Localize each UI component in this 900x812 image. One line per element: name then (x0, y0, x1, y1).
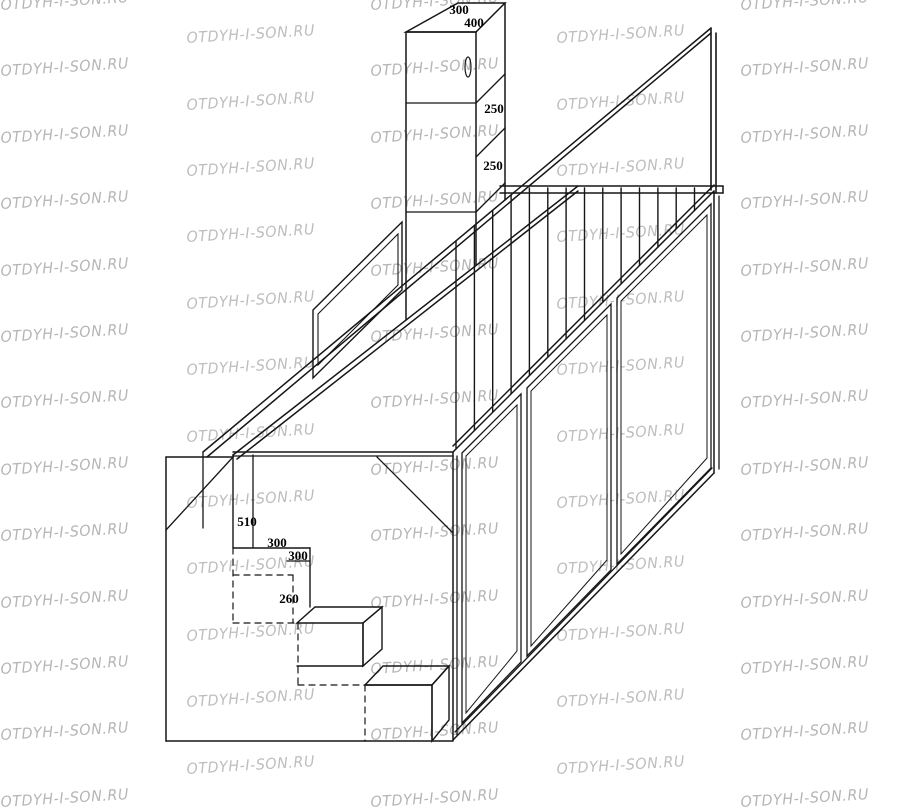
hidden-edges (233, 548, 365, 741)
dimension-label: 250 (483, 158, 503, 173)
step-1-top (297, 607, 382, 623)
headboard-panel (313, 222, 402, 378)
platform-rails (203, 28, 723, 459)
base-side-edge (377, 457, 453, 533)
step-2-side (432, 666, 449, 741)
furniture-drawing: 300400250250510300300260 (0, 0, 900, 812)
step-1-side (363, 607, 382, 666)
dimension-label: 400 (464, 15, 484, 30)
step-2-top (365, 666, 449, 685)
dimension-label: 260 (279, 591, 299, 606)
stairs-unit (166, 452, 453, 741)
railing-balusters (456, 188, 695, 449)
guardrail-top (203, 28, 711, 452)
blueprint-canvas: OTDYH-I-SON.RUOTDYH-I-SON.RUOTDYH-I-SON.… (0, 0, 900, 812)
door-handle (465, 57, 471, 77)
dimension-label: 300 (267, 535, 287, 550)
dimension-label: 510 (237, 514, 257, 529)
dimension-labels: 300400250250510300300260 (237, 2, 504, 606)
dimension-label: 250 (484, 101, 504, 116)
dimension-label: 300 (288, 548, 308, 563)
